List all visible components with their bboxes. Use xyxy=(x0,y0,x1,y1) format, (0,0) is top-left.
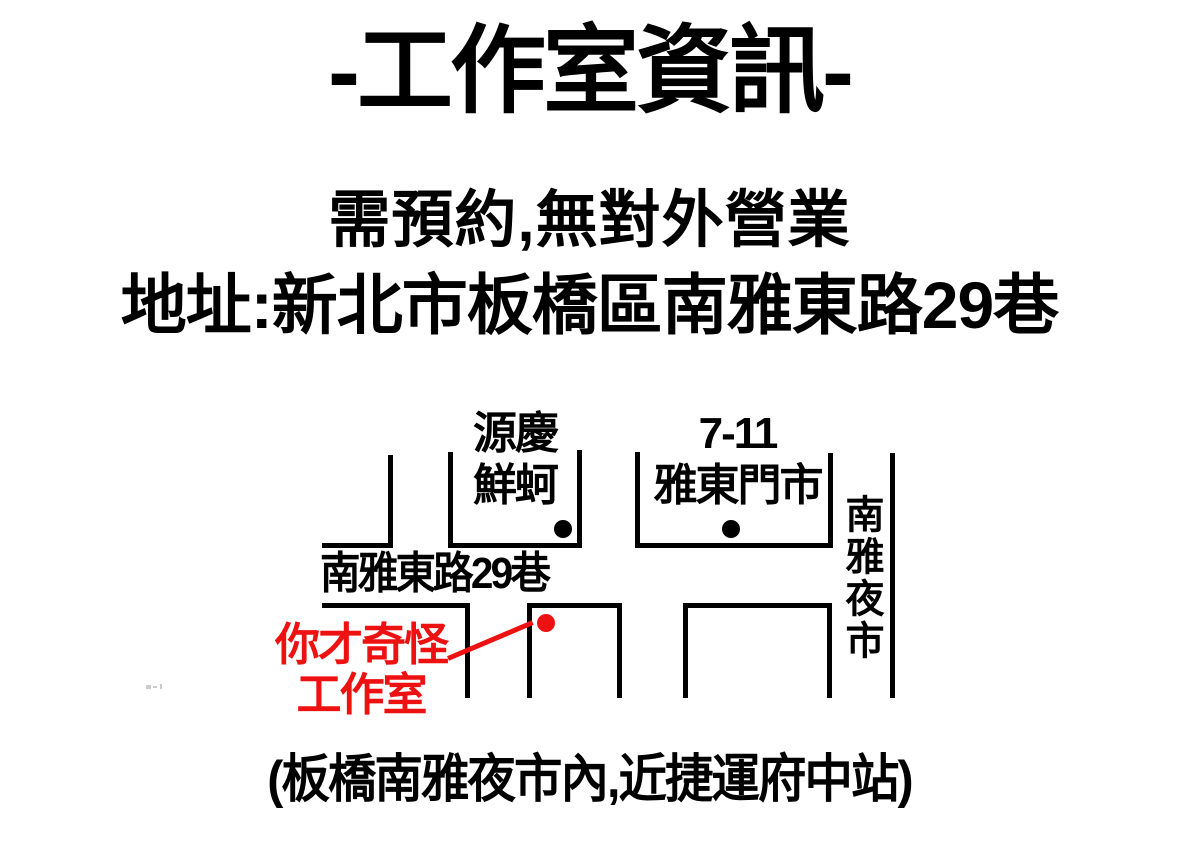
seveneleven-block-bottom xyxy=(635,543,833,548)
bottom-left-block-top xyxy=(322,603,470,608)
studio-block-right-wall xyxy=(617,603,622,698)
bottom-right-block-right-wall xyxy=(827,603,832,698)
studio-label-line1: 你才奇怪 xyxy=(255,620,467,670)
seveneleven-label-line2: 雅東門市 xyxy=(630,460,845,512)
block-corner-left-horizontal xyxy=(322,543,393,548)
faint-smudge-artifact xyxy=(146,684,164,690)
oyster-block-bottom xyxy=(448,543,582,548)
oyster-shop-label-line2: 鮮蚵 xyxy=(415,460,615,512)
studio-location-dot xyxy=(537,614,555,632)
street-label: 南雅東路29巷 xyxy=(320,552,548,596)
seveneleven-dot xyxy=(722,520,740,538)
studio-block-left-wall xyxy=(527,603,532,698)
seveneleven-label-line1: 7-11 xyxy=(630,408,845,460)
night-market-label: 南雅夜市 xyxy=(839,494,883,662)
street-map: 源慶 鮮蚵 7-11 雅東門市 南雅東路29巷 南雅夜市 你才奇怪 工作室 xyxy=(0,0,1179,842)
oyster-shop-label: 源慶 鮮蚵 xyxy=(415,408,615,512)
studio-label-line2: 工作室 xyxy=(255,670,467,720)
bottom-right-block-left-wall xyxy=(683,603,688,698)
oyster-shop-label-line1: 源慶 xyxy=(415,408,615,460)
block-corner-left-vertical xyxy=(388,455,393,548)
studio-block-top xyxy=(527,603,622,608)
oyster-shop-dot xyxy=(554,520,572,538)
seveneleven-label: 7-11 雅東門市 xyxy=(630,408,845,512)
night-market-road-line xyxy=(890,453,895,698)
footer-caption: (板橋南雅夜市內,近捷運府中站) xyxy=(41,752,1137,809)
bottom-right-block-top xyxy=(683,603,832,608)
studio-info-flyer: -工作室資訊- 需預約,無對外營業 地址:新北市板橋區南雅東路29巷 源慶 鮮 xyxy=(0,0,1179,842)
studio-label: 你才奇怪 工作室 xyxy=(255,620,467,720)
